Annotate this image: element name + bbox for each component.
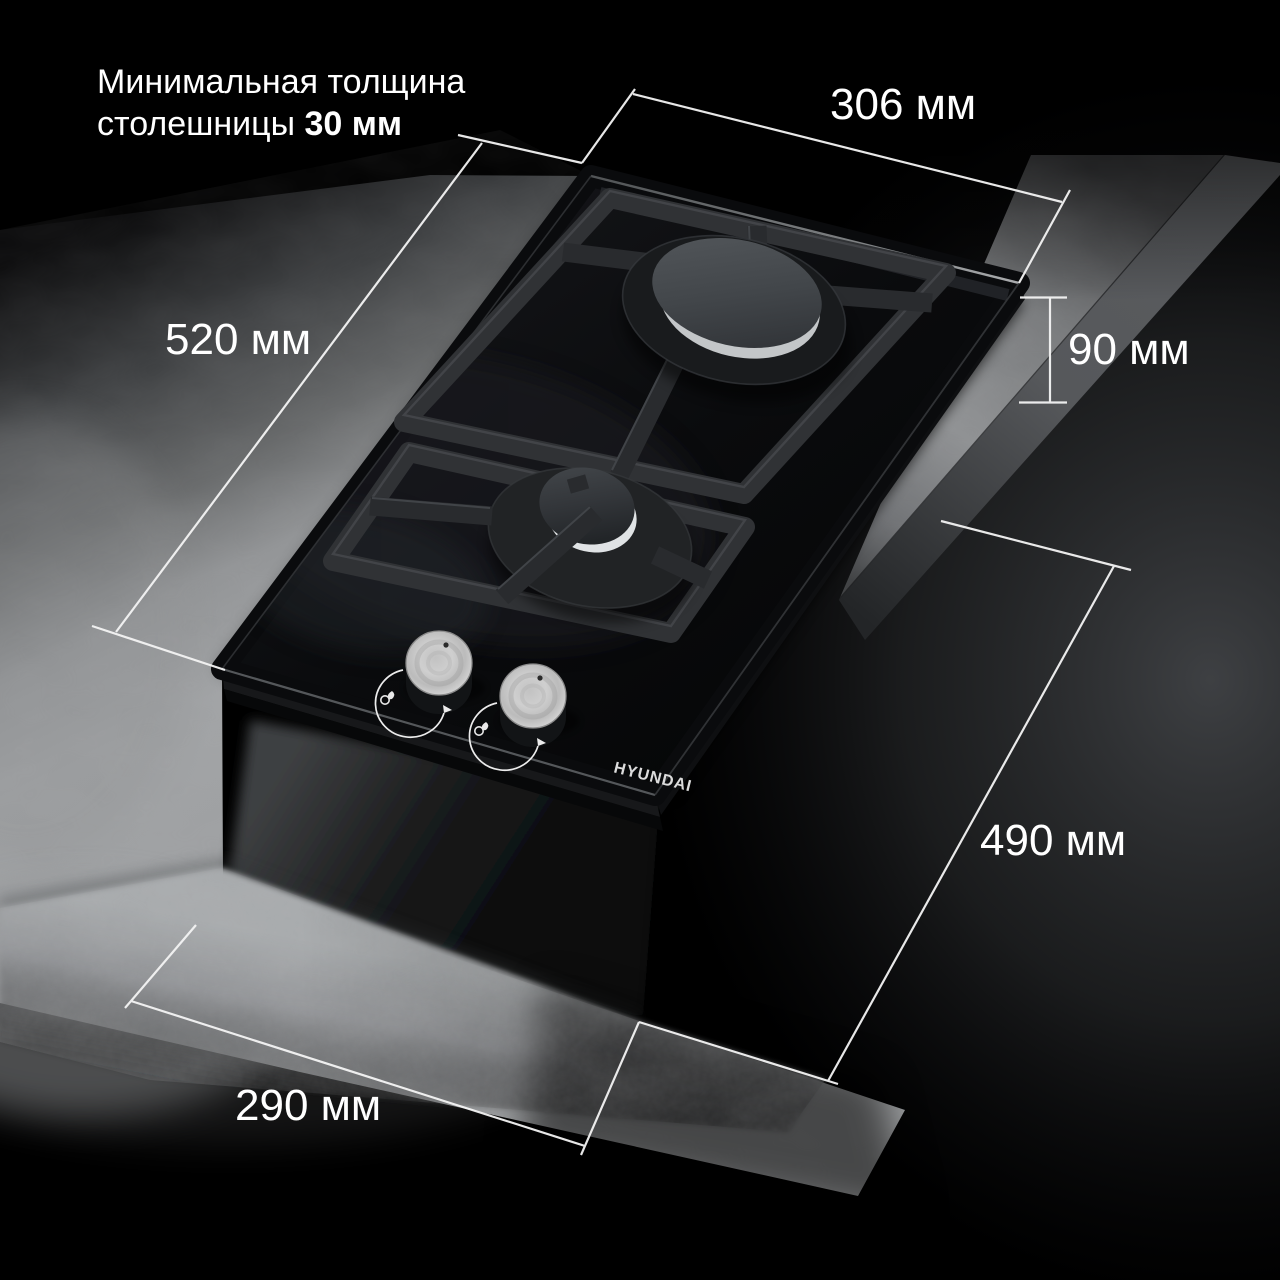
svg-text:490 мм: 490 мм bbox=[980, 816, 1126, 865]
svg-text:306 мм: 306 мм bbox=[830, 80, 976, 129]
svg-text:290 мм: 290 мм bbox=[235, 1081, 381, 1130]
svg-text:Минимальная толщина: Минимальная толщина bbox=[97, 63, 465, 101]
svg-text:520 мм: 520 мм bbox=[165, 315, 311, 364]
svg-text:столешницы 30 мм: столешницы 30 мм bbox=[97, 105, 402, 143]
svg-text:90 мм: 90 мм bbox=[1068, 325, 1190, 374]
